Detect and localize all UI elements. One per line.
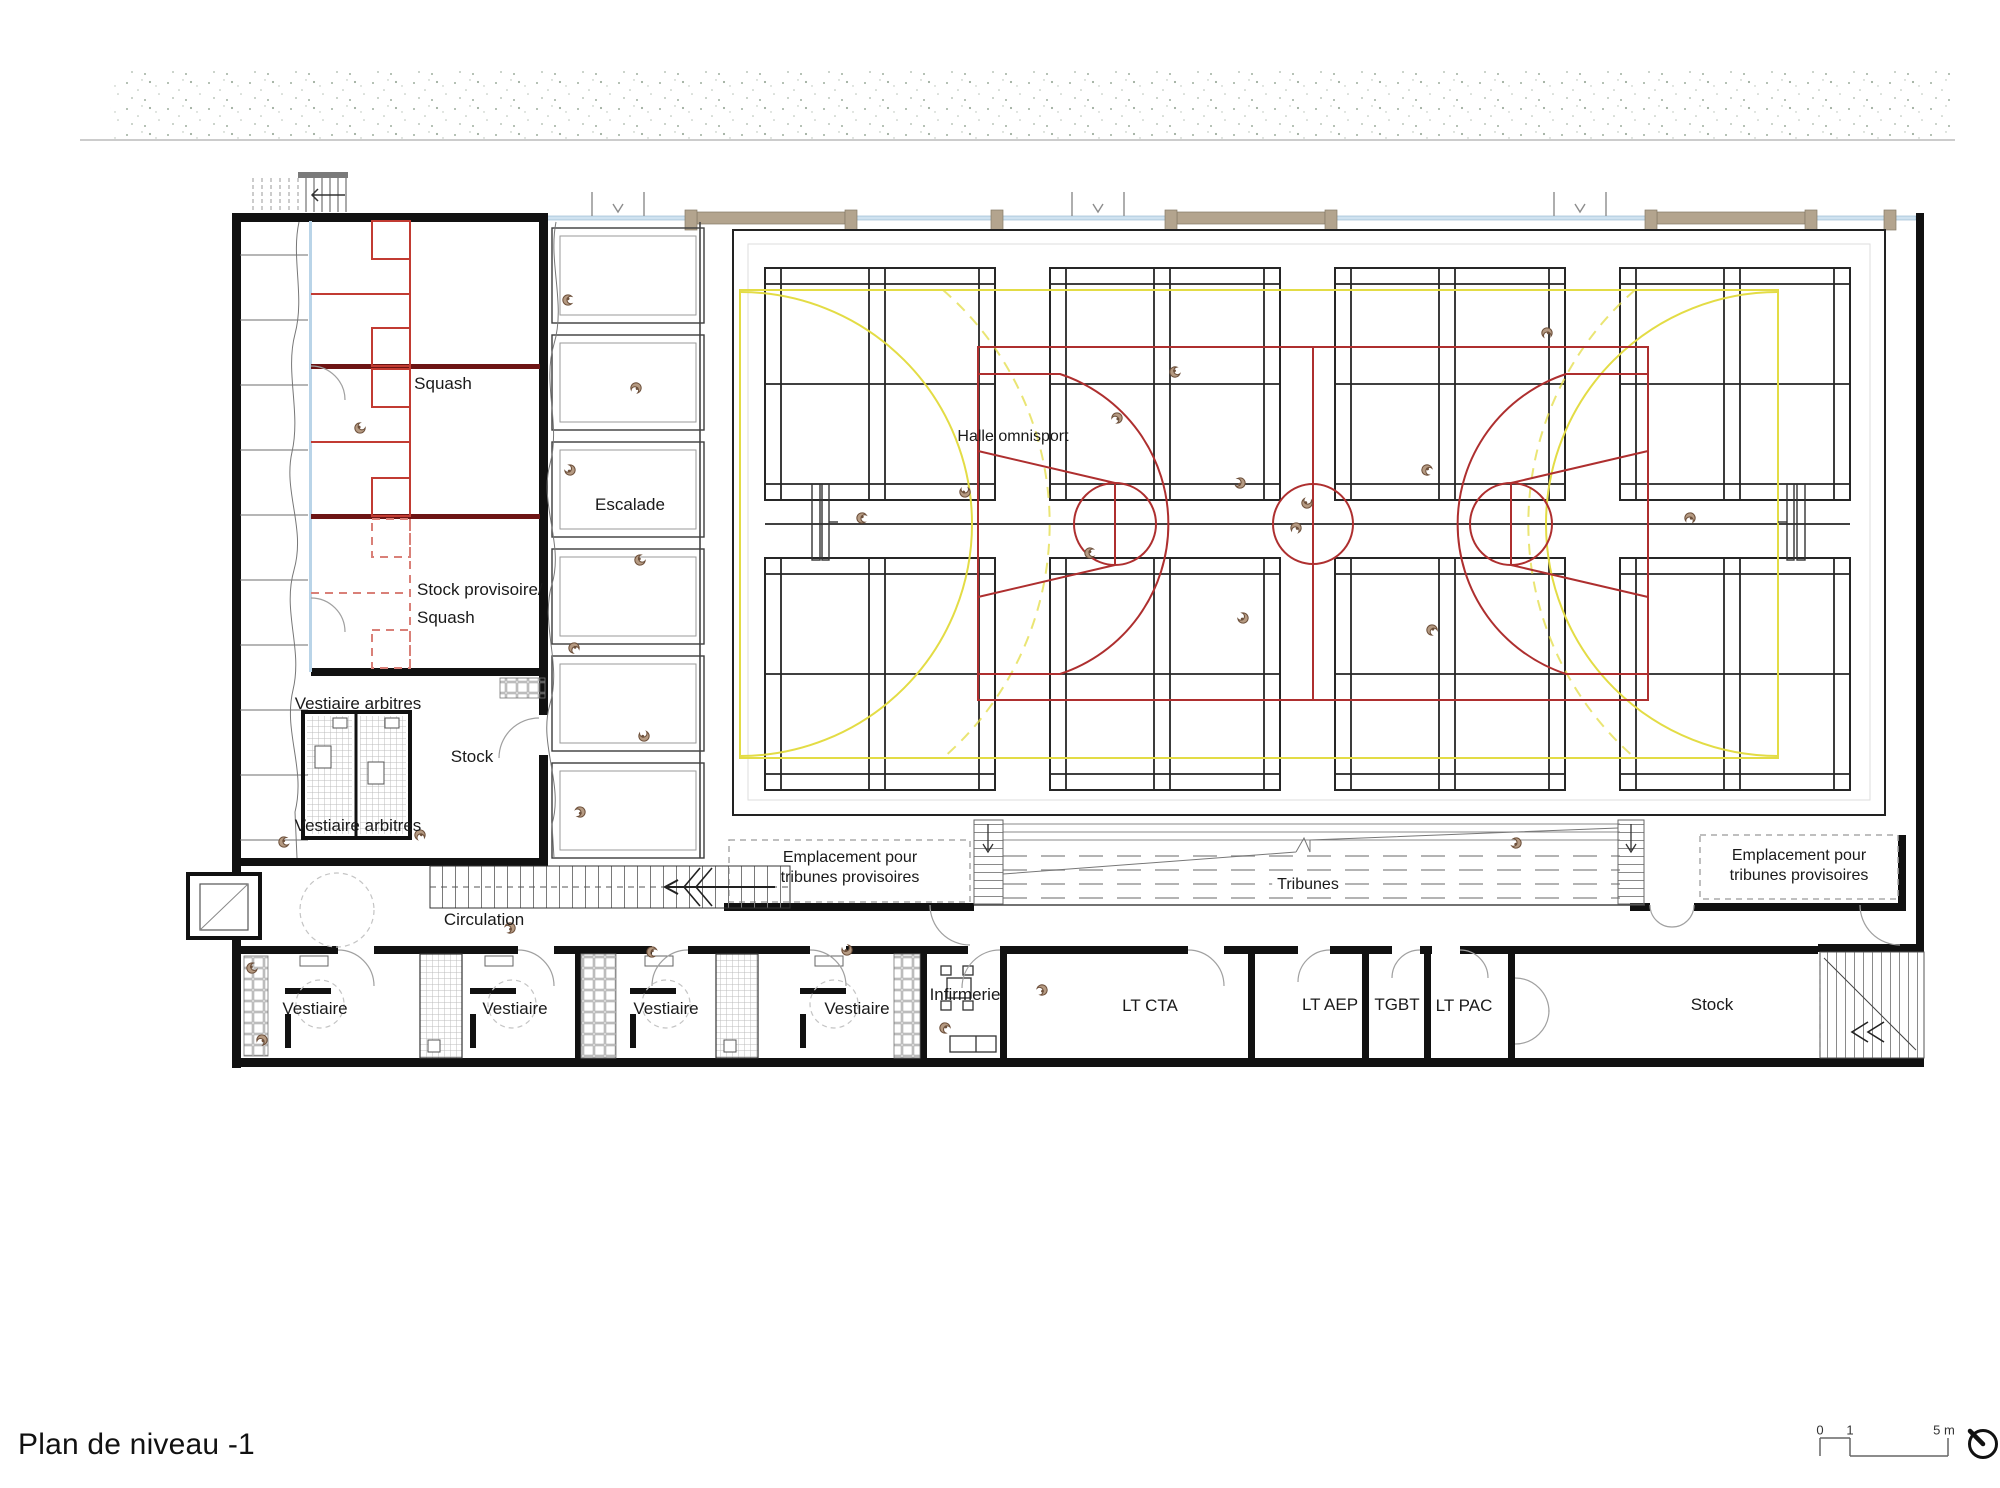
basket-backboard-right: [1778, 484, 1805, 560]
socket-icon: [355, 423, 365, 433]
stair-bottom-right: [1820, 952, 1924, 1058]
emplacement-left-line2: tribunes provisoires: [781, 868, 920, 888]
socket-icon: [1233, 476, 1247, 490]
socket-icon: [564, 464, 576, 476]
north-arrow-icon: [1970, 1431, 1997, 1458]
emplacement-right-line1: Emplacement pour: [1730, 846, 1869, 866]
glazed-back-wall: [309, 221, 312, 672]
socket-icon: [1683, 511, 1697, 525]
room-label-lt-aep: LT AEP: [1302, 995, 1358, 1015]
squash-future-court-dashed: [311, 519, 410, 668]
structural-walls: [232, 213, 1924, 1068]
room-label-vestiaire-2: Vestiaire: [482, 999, 547, 1019]
plan-linework: [0, 0, 2000, 1488]
scale-zero: 0: [1816, 1423, 1823, 1438]
room-label-circulation: Circulation: [444, 910, 524, 930]
label-emplacement-left: Emplacement pour tribunes provisoires: [781, 848, 920, 888]
socket-icon: [1035, 983, 1048, 996]
central-stair: [430, 866, 790, 908]
room-label-tgbt: TGBT: [1374, 995, 1419, 1015]
stock-provisoire-line1: Stock provisoire/: [417, 576, 543, 604]
socket-icon: [1237, 612, 1249, 624]
socket-icon: [1420, 463, 1433, 476]
socket-icon: [637, 729, 651, 743]
tribune-slope-line: [1003, 828, 1618, 874]
socket-icon: [634, 554, 646, 566]
socket-icon: [1540, 326, 1555, 341]
socket-icon: [629, 381, 642, 394]
room-label-stock-provisoire: Stock provisoire/ Squash: [417, 576, 543, 632]
socket-icon: [561, 293, 576, 308]
room-label-tribunes: Tribunes: [1272, 876, 1344, 894]
floor-plan: Squash Stock provisoire/ Squash Escalade…: [0, 0, 2000, 1488]
room-label-vestiaire-arbitres-2: Vestiaire arbitres: [295, 816, 422, 836]
scale-bar: [1820, 1438, 1948, 1456]
label-emplacement-right: Emplacement pour tribunes provisoires: [1730, 846, 1869, 886]
elevator: [188, 874, 260, 938]
socket-icon: [1300, 496, 1314, 510]
socket-icon: [1509, 836, 1523, 850]
socket-icon: [573, 805, 587, 819]
room-label-lt-cta: LT CTA: [1122, 996, 1178, 1016]
room-label-escalade: Escalade: [595, 495, 665, 515]
room-label-squash: Squash: [414, 374, 472, 394]
sports-hall: [733, 230, 1885, 815]
room-label-lt-pac: LT PAC: [1436, 996, 1493, 1016]
room-label-halle-omnisport: Halle omnisport: [957, 428, 1068, 446]
room-label-vestiaire-4: Vestiaire: [824, 999, 889, 1019]
room-label-vestiaire-3: Vestiaire: [633, 999, 698, 1019]
socket-icon: [1427, 625, 1437, 635]
socket-icon: [277, 835, 291, 849]
socket-icon: [939, 1022, 951, 1034]
scale-five-m: 5 m: [1933, 1423, 1955, 1438]
room-label-stock-left: Stock: [451, 747, 494, 767]
room-label-stock-right: Stock: [1691, 995, 1734, 1015]
infirmary-furniture: [941, 966, 996, 1052]
socket-icon: [841, 944, 854, 957]
top-facade: [425, 192, 1916, 230]
stock-provisoire-line2: Squash: [417, 604, 543, 632]
socket-icon: [1289, 521, 1303, 535]
site-ground-band: [80, 70, 1955, 140]
emplacement-right-line2: tribunes provisoires: [1730, 866, 1869, 886]
room-label-infirmerie: Infirmerie: [930, 985, 1001, 1005]
page-title: Plan de niveau -1: [18, 1428, 255, 1462]
basket-backboard-left: [812, 484, 838, 560]
exterior-stair-topleft: [253, 172, 348, 212]
socket-icon: [855, 511, 869, 525]
climbing-wall-strip: [547, 222, 704, 858]
socket-icon: [1112, 413, 1122, 423]
scale-one: 1: [1846, 1423, 1853, 1438]
room-label-vestiaire-1: Vestiaire: [282, 999, 347, 1019]
emplacement-left-line1: Emplacement pour: [781, 848, 920, 868]
room-label-vestiaire-arbitres-1: Vestiaire arbitres: [295, 694, 422, 714]
